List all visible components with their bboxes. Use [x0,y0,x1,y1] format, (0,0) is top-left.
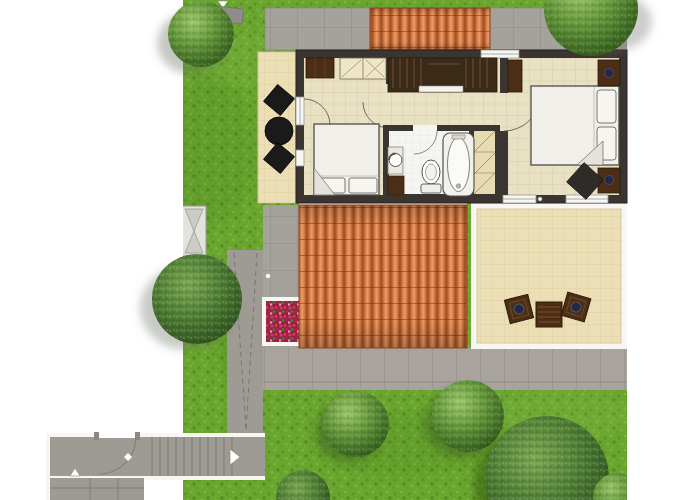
gate-jamb [94,432,99,440]
top-roof-shade [370,8,490,50]
bathroom-door-gap [413,125,437,131]
shelf-closet-left [340,58,386,79]
main-roof-shade [299,205,467,348]
u-staircase [388,58,497,92]
path-marker [266,274,271,279]
bathtub-faucet [452,135,465,139]
bed-right [531,86,619,165]
corridor-paving-lower [50,478,144,500]
stair-landing [419,86,463,92]
bathroom [383,125,500,200]
pillow [349,178,377,193]
wall-marker [538,197,542,201]
bedroom-door-gap [500,93,508,131]
patio-chair-left [504,294,533,323]
storage-closet [474,131,495,194]
bathtub-drain [456,184,460,188]
site-plan-svg [0,0,700,500]
nightstand-top [598,60,620,86]
bath-cabinet [388,176,404,195]
window-left-2 [296,150,304,166]
patio-table [536,302,562,327]
toilet [421,160,441,193]
house [258,50,627,203]
pillow [597,90,616,123]
wardrobe-left [306,58,334,78]
wardrobe-right [508,60,522,92]
bed-left [314,124,379,195]
bathtub [443,133,474,196]
garden-lounger [182,206,206,256]
terrace-round-table [265,117,293,145]
gate-opening [97,433,137,438]
bottom-path [263,348,627,390]
flower-bed [266,301,299,342]
site-plan-image [0,0,700,500]
